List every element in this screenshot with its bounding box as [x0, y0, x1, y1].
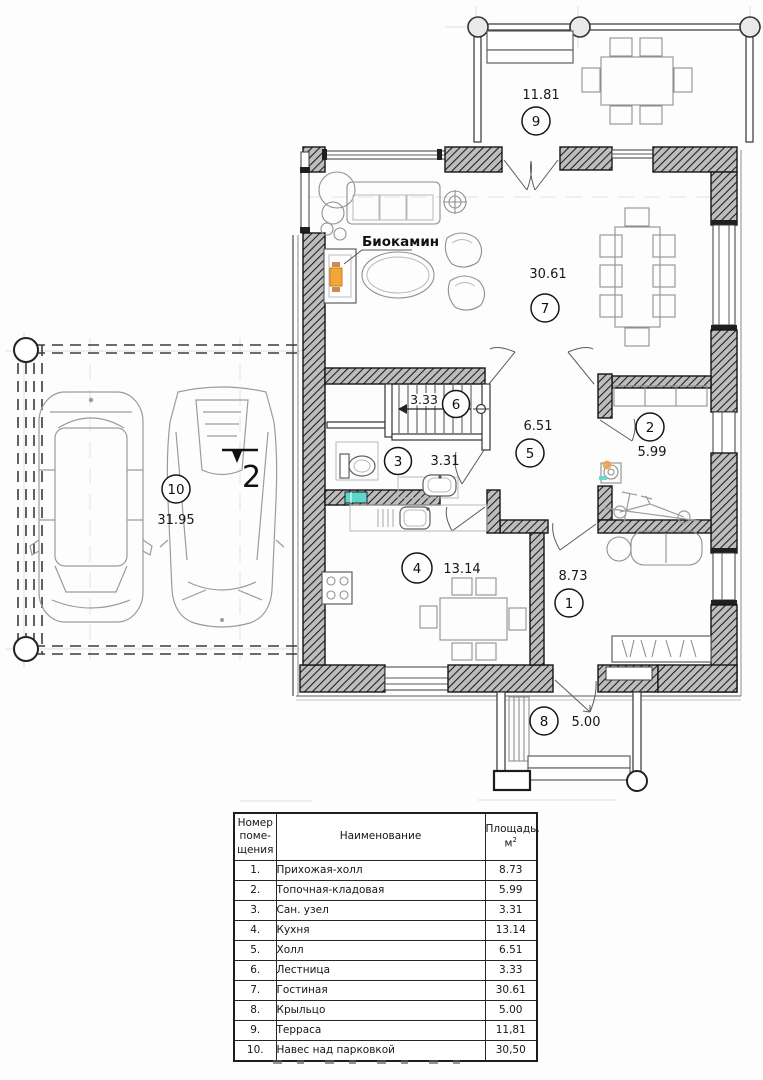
room-5-area: 6.51 [524, 419, 553, 434]
table-row: 7. Гостиная 30.61 [234, 981, 537, 1001]
header-line: Площадь, [486, 823, 540, 835]
row-area: 11,81 [485, 1021, 537, 1041]
shelving [614, 386, 707, 406]
header-line: поме- [240, 830, 271, 842]
row-name: Гостиная [276, 981, 485, 1001]
boiler [599, 461, 621, 484]
row-number: 7. [234, 981, 276, 1001]
table-header-row: Номер поме- щения Наименование Площадь, … [234, 813, 537, 861]
row-name: Навес над парковкой [276, 1041, 485, 1062]
hall: 6.51 5 [516, 419, 552, 467]
table-row: 3. Сан. узел 3.31 [234, 901, 537, 921]
room-9-number: 9 [532, 114, 541, 130]
header-name: Наименование [276, 813, 485, 861]
table-row: 4. Кухня 13.14 [234, 921, 537, 941]
room-area-table: Номер поме- щения Наименование Площадь, … [233, 812, 538, 1062]
room-4-number: 4 [413, 561, 422, 577]
cutoff-row-fragment [273, 1060, 463, 1064]
room-label-7: 30.61 7 [529, 267, 566, 322]
row-area: 6.51 [485, 941, 537, 961]
row-name: Сан. узел [276, 901, 485, 921]
row-number: 2. [234, 881, 276, 901]
row-name: Кухня [276, 921, 485, 941]
row-number: 3. [234, 901, 276, 921]
row-area: 13.14 [485, 921, 537, 941]
table-row: 5. Холл 6.51 [234, 941, 537, 961]
row-area: 30.61 [485, 981, 537, 1001]
porch-steps [528, 756, 630, 780]
room-4-area: 13.14 [443, 562, 480, 577]
room-label-3: 3 3.31 [385, 448, 460, 475]
terrace: 11.81 9 [468, 17, 760, 142]
section-number: 2 [242, 460, 261, 495]
room-3-area: 3.31 [431, 454, 460, 469]
section-marker: 2 [222, 450, 261, 495]
armchair [445, 233, 481, 267]
porch-base [494, 771, 530, 790]
floor-plan-page: 11.81 9 [0, 0, 763, 1080]
armchair [448, 276, 484, 310]
car-sports [160, 387, 284, 627]
header-unit-sup: 2 [512, 836, 516, 844]
room-10-number: 10 [167, 482, 184, 498]
room-1-number: 1 [565, 596, 574, 612]
bio-fireplace [324, 249, 356, 303]
terrace-bench [487, 31, 573, 63]
coffee-table [362, 252, 434, 298]
room-10-area: 31.95 [157, 513, 194, 528]
vent-window [345, 492, 367, 503]
room-label-1: 8.73 1 [555, 569, 587, 617]
row-name: Топочная-кладовая [276, 881, 485, 901]
row-number: 6. [234, 961, 276, 981]
room-5-number: 5 [526, 446, 535, 462]
boiler-room: 2 5.99 [599, 386, 707, 523]
room-8-area: 5.00 [572, 715, 601, 730]
doormat [509, 697, 529, 761]
stove [322, 572, 352, 604]
carport-column [14, 338, 38, 362]
room-6-area: 3.33 [410, 392, 438, 407]
room-label-2: 2 5.99 [636, 413, 666, 460]
entrance-hall: 8.73 1 [555, 531, 711, 662]
row-area: 3.31 [485, 901, 537, 921]
row-area: 5.00 [485, 1001, 537, 1021]
hall-bench [631, 531, 702, 565]
row-number: 1. [234, 861, 276, 881]
table-row: 6. Лестница 3.33 [234, 961, 537, 981]
room-1-area: 8.73 [559, 569, 588, 584]
car-sedan [30, 392, 152, 622]
row-name: Прихожая-холл [276, 861, 485, 881]
table-row: 2. Топочная-кладовая 5.99 [234, 881, 537, 901]
carport: 2 10 31.95 [14, 338, 298, 661]
stairs: 3.33 6 [398, 385, 489, 433]
row-area: 8.73 [485, 861, 537, 881]
room-label-10: 10 31.95 [157, 475, 194, 528]
row-name: Крыльцо [276, 1001, 485, 1021]
terrace-column [740, 17, 760, 37]
header-area: Площадь, м2 [485, 813, 537, 861]
row-number: 10. [234, 1041, 276, 1062]
row-name: Терраса [276, 1021, 485, 1041]
dining-table-room7 [600, 208, 675, 346]
floor-plan-drawing: 11.81 9 [0, 0, 763, 808]
row-number: 5. [234, 941, 276, 961]
table-row: 1. Прихожая-холл 8.73 [234, 861, 537, 881]
fireplace-label: Биокамин [362, 234, 439, 250]
room-2-area: 5.99 [638, 445, 667, 460]
row-area: 3.33 [485, 961, 537, 981]
side-table [443, 190, 467, 214]
terrace-dining-table [582, 38, 692, 124]
row-name: Лестница [276, 961, 485, 981]
living-room: Биокамин 30.61 7 [319, 172, 675, 346]
wardrobe [612, 636, 711, 662]
header-line: Номер [238, 817, 273, 829]
row-area: 30,50 [485, 1041, 537, 1062]
table-row: 9. Терраса 11,81 [234, 1021, 537, 1041]
row-number: 9. [234, 1021, 276, 1041]
row-name: Холл [276, 941, 485, 961]
room-3-number: 3 [394, 454, 403, 470]
room-7-number: 7 [541, 301, 550, 317]
room-6-number: 6 [452, 397, 461, 413]
carport-column [14, 637, 38, 661]
terrace-column [468, 17, 488, 37]
bicycle [604, 492, 700, 523]
room-area-table-wrap: Номер поме- щения Наименование Площадь, … [233, 812, 536, 1062]
table-row: 8. Крыльцо 5.00 [234, 1001, 537, 1021]
toilet [340, 454, 375, 478]
kitchen-sink [378, 507, 430, 529]
room-8-number: 8 [540, 714, 549, 730]
room-7-area: 30.61 [529, 267, 566, 282]
room-2-number: 2 [646, 420, 655, 436]
row-number: 8. [234, 1001, 276, 1021]
porch-column [627, 771, 647, 791]
header-line: щения [237, 844, 273, 856]
kitchen-table [420, 578, 526, 660]
room-9-area: 11.81 [522, 88, 559, 103]
row-number: 4. [234, 921, 276, 941]
header-room-number: Номер поме- щения [234, 813, 276, 861]
row-area: 5.99 [485, 881, 537, 901]
sofa [347, 182, 440, 224]
pouf [607, 537, 631, 561]
table-row: 10. Навес над парковкой 30,50 [234, 1041, 537, 1062]
porch: 8 5.00 [494, 692, 647, 791]
room-label-9: 11.81 9 [522, 88, 560, 135]
